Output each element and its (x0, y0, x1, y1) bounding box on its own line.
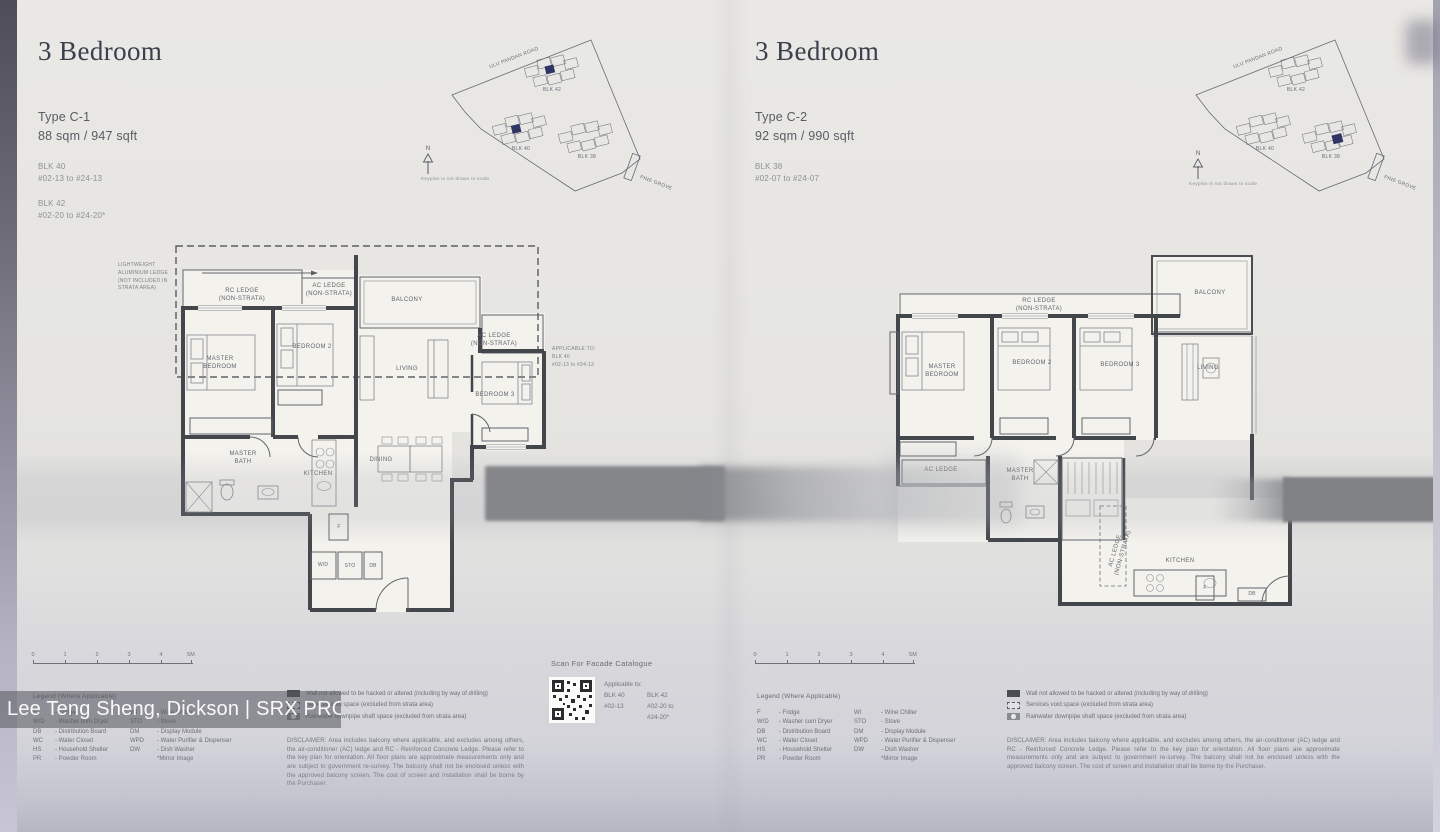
room-label-rc-ledge: RC LEDGE (NON-STRATA) (219, 288, 265, 304)
wall-legend-item: Rainwater downpipe shaft space (excluded… (1007, 713, 1407, 720)
block-label: BLK 40 (1256, 146, 1274, 152)
scale-tick: 0 (31, 652, 34, 658)
room-label-living: LIVING (1197, 365, 1219, 373)
page-title: 3 Bedroom (755, 36, 879, 67)
stack-range: #02-07 to #24-07 (755, 173, 819, 185)
scale-tick: 0 (753, 652, 756, 658)
scale-tick: 5M (909, 652, 917, 658)
keyplan-note: Keyplan is not drawn to scale (1189, 182, 1257, 187)
solid-wall-swatch-icon (1007, 690, 1020, 697)
room-label-bedroom3: BEDROOM 3 (475, 392, 514, 400)
north-arrow-icon (421, 153, 435, 175)
qr-applicable-col: BLK 40 #02-13 (604, 690, 647, 723)
room-label-master-bedroom: MASTER BEDROOM (925, 364, 958, 380)
redaction-smudge (1215, 479, 1290, 521)
stack-range: #02-13 to #24-13 (38, 173, 102, 185)
block-label: BLK 38 (1322, 154, 1340, 160)
scale-tick: 3 (849, 652, 852, 658)
page-title: 3 Bedroom (38, 36, 162, 67)
room-label-rc-ledge: RC LEDGE (NON-STRATA) (1016, 298, 1062, 314)
legend-row: DB- Distribution Board (757, 728, 854, 737)
qr-section-title: Scan For Facade Catalogue (551, 659, 652, 668)
room-label-bedroom2: BEDROOM 2 (1012, 360, 1051, 368)
room-label-balcony: BALCONY (391, 297, 422, 305)
north-label: N (426, 146, 430, 152)
stack-info: BLK 42 #02-20 to #24-20* (38, 198, 105, 221)
scale-tick: 3 (127, 652, 130, 658)
services-void-swatch-icon (1007, 702, 1020, 709)
unit-area-label: 88 sqm / 947 sqft (38, 129, 137, 143)
wall-legend-item: Wall not allowed to be hacked or altered… (1007, 690, 1407, 697)
keyplan-note: Keyplan is not drawn to scale (421, 177, 489, 182)
scale-tick: 2 (95, 652, 98, 658)
redaction-blur (1283, 477, 1440, 522)
qr-applicable-col: BLK 42 #02-20 to #24-20* (647, 690, 674, 723)
room-label-balcony: BALCONY (1194, 290, 1225, 298)
room-label-living: LIVING (396, 366, 418, 374)
unit-type-label: Type C-2 (755, 110, 807, 124)
room-label-bedroom2: BEDROOM 2 (292, 344, 331, 352)
stack-range: #02-20 to #24-20* (38, 210, 105, 222)
north-label: N (1196, 151, 1200, 157)
legend-title: Legend (Where Applicable) (757, 693, 955, 700)
room-label-bedroom3: BEDROOM 3 (1100, 362, 1139, 370)
room-label-ac-ledge: AC LEDGE (NON-STRATA) (471, 333, 517, 349)
legend-row: DM- Display Module (854, 728, 955, 737)
legend-row: DM- Display Module (130, 728, 231, 737)
stack-blk: BLK 42 (38, 198, 105, 210)
legend-row: F- Fridge (757, 709, 854, 718)
photo-right-edge (1433, 0, 1440, 832)
redaction-blur (485, 466, 725, 521)
stack-info: BLK 40 #02-13 to #24-13 (38, 161, 102, 184)
unit-type-label: Type C-1 (38, 110, 90, 124)
photo-corner-shadow (1406, 20, 1440, 64)
appliance-label-db: DB (369, 563, 376, 570)
legend-row: WI- Wine Chiller (854, 709, 955, 718)
scale-tick: 4 (159, 652, 162, 658)
stack-info: BLK 38 #02-07 to #24-07 (755, 161, 819, 184)
scale-bar: 0 1 2 3 4 5M (33, 652, 195, 668)
scale-tick: 1 (785, 652, 788, 658)
block-label: BLK 38 (578, 154, 596, 160)
wall-legend: Wall not allowed to be hacked or altered… (1007, 690, 1407, 725)
room-label-ac-ledge: AC LEDGE (NON-STRATA) (306, 283, 352, 299)
scale-tick: 4 (881, 652, 884, 658)
page-fold-shadow (712, 0, 748, 832)
stack-blk: BLK 40 (38, 161, 102, 173)
downpipe-shaft-swatch-icon (1007, 713, 1020, 720)
qr-applicable-block: Applicable to: BLK 40 #02-13 BLK 42 #02-… (604, 679, 674, 723)
legend-row: STO- Stove (854, 718, 955, 727)
agent-watermark: Lee Teng Sheng, Dickson | SRX PROPERTY (0, 691, 341, 728)
legend-row: DB- Distribution Board (33, 728, 130, 737)
block-label: BLK 42 (543, 87, 561, 93)
block-label: BLK 42 (1287, 87, 1305, 93)
stack-blk: BLK 38 (755, 161, 819, 173)
redaction-smudge (888, 455, 1018, 525)
scale-tick: 1 (63, 652, 66, 658)
qr-applicable-label: Applicable to: (604, 679, 674, 690)
unit-area-label: 92 sqm / 990 sqft (755, 129, 854, 143)
appliance-label-fridge: F (1203, 585, 1206, 592)
scale-tick: 5M (187, 652, 195, 658)
appliance-label-db: DB (1248, 591, 1255, 598)
keyplan-map (1168, 32, 1418, 207)
annotation-applicable-to: APPLICABLE TO: BLK 40 #02-13 to #24-13 (552, 346, 596, 369)
scale-tick: 2 (817, 652, 820, 658)
scale-bar: 0 1 2 3 4 5M (755, 652, 917, 668)
room-label-kitchen: KITCHEN (1166, 558, 1195, 566)
legend-row: W/D- Washer cum Dryer (757, 718, 854, 727)
room-label-master-bedroom: MASTER BEDROOM (203, 356, 236, 372)
north-arrow-icon (1191, 158, 1205, 180)
photo-bottom-shading (0, 742, 1440, 832)
qr-code-icon (549, 677, 595, 723)
appliance-label-wd: W/D (318, 562, 328, 569)
wall-legend-item: Services void space (excluded from strat… (1007, 702, 1407, 709)
annotation-lightweight-ledge: LIGHTWEIGHT ALUMINIUM LEDGE (NOT INCLUDE… (118, 262, 202, 293)
appliance-label-sto: STO (345, 563, 356, 570)
block-label: BLK 40 (512, 146, 530, 152)
floorplan-brochure-page: 3 Bedroom Type C-1 88 sqm / 947 sqft BLK… (0, 0, 1440, 832)
